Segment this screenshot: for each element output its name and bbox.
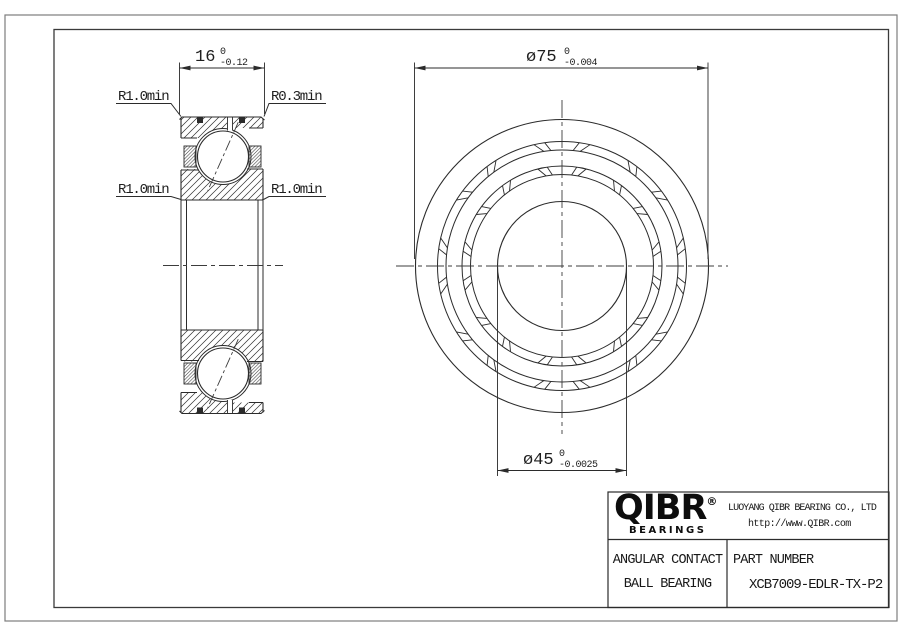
pocket-wall-line: [510, 180, 511, 191]
pocket-wall-line: [487, 356, 488, 366]
pocket-wall-line: [538, 169, 546, 176]
pocket-wall-line: [578, 356, 586, 363]
width-dim-value: 16: [195, 48, 215, 67]
outer-ring-section-bottom-right: [233, 403, 263, 414]
pocket-wall-line: [545, 143, 551, 151]
pocket-wall-line: [620, 186, 622, 195]
pocket-wall-line: [677, 249, 685, 255]
pocket-wall-line: [465, 242, 472, 250]
seal-groove-bottom-right: [239, 408, 245, 414]
pocket-wall-line: [633, 324, 642, 326]
pocket-wall-line: [677, 284, 684, 294]
product-type-line2: BALL BEARING: [608, 577, 727, 592]
dim-arrow: [616, 468, 627, 473]
pocket-wall-line: [614, 341, 615, 352]
ball-bottom: [198, 348, 249, 399]
dim-arrow: [697, 66, 708, 71]
pocket-wall-line: [534, 145, 544, 152]
cage-section-bottom-left: [184, 363, 196, 384]
pocket-wall-line: [573, 143, 579, 151]
pocket-wall-line: [441, 238, 448, 248]
registered-trademark-icon: ®: [706, 495, 717, 508]
pocket-wall-line: [653, 251, 661, 256]
pocket-wall-line: [572, 167, 577, 175]
dim-arrow: [415, 66, 426, 71]
cage-section-top-left: [184, 146, 196, 167]
pocket-wall-line: [441, 284, 448, 294]
engineering-drawing-sheet: 16 0 -0.12 R1.0min R0.3min R1.0min R1.0m…: [0, 0, 900, 636]
seal-slot-bottom: [228, 400, 233, 414]
pocket-wall-line: [652, 282, 659, 290]
pocket-wall-line: [652, 191, 662, 192]
pocket-wall-line: [580, 381, 590, 388]
dim-arrow: [180, 66, 191, 71]
pocket-wall-line: [573, 381, 579, 389]
pocket-wall-line: [653, 276, 661, 281]
pocket-wall-line: [487, 167, 488, 177]
seal-groove-top-left: [197, 118, 203, 124]
cage-section-top-right: [249, 146, 261, 167]
front-view: ø75 0 -0.004 ø45 0 -0.0025: [396, 47, 728, 476]
pocket-wall-line: [439, 277, 447, 283]
pocket-wall-line: [463, 191, 473, 192]
pocket-wall-line: [636, 167, 637, 177]
ball-top: [198, 131, 249, 182]
outer-ring-section-top-right: [233, 117, 263, 128]
bore-dim-tol-lower: -0.0025: [559, 460, 598, 471]
pocket-wall-line: [677, 238, 684, 248]
company-name: LUOYANG QIBR BEARING CO., LTD: [728, 503, 876, 514]
pocket-wall-line: [476, 318, 487, 319]
pocket-wall-line: [476, 214, 487, 215]
width-dim-tol-lower: -0.12: [220, 58, 248, 69]
part-number-value: XCB7009-EDLR-TX-P2: [749, 577, 882, 593]
od-dimension: ø75 0 -0.004: [415, 47, 709, 259]
pocket-wall-line: [534, 381, 544, 388]
pocket-wall-line: [545, 381, 551, 389]
dim-arrow: [498, 468, 509, 473]
pocket-wall-line: [463, 251, 471, 256]
pocket-wall-line: [503, 186, 505, 195]
width-dimension: 16 0 -0.12: [180, 47, 265, 114]
pocket-wall-line: [463, 340, 473, 341]
pocket-wall-line: [547, 167, 552, 175]
dim-arrow: [254, 66, 265, 71]
cage-section-bottom-right: [249, 363, 261, 384]
pocket-wall-line: [482, 324, 491, 326]
pocket-wall-line: [614, 180, 615, 191]
product-type-line1: ANGULAR CONTACT: [608, 553, 727, 568]
pocket-wall-line: [465, 282, 472, 290]
pocket-wall-line: [580, 145, 590, 152]
pocket-wall-line: [637, 214, 648, 215]
pocket-wall-line: [637, 318, 648, 319]
pocket-wall-line: [636, 356, 637, 366]
pocket-wall-line: [439, 249, 447, 255]
radius-label-mid-right: R1.0min: [271, 182, 322, 198]
pocket-wall-line: [482, 207, 491, 209]
width-dim-tol-upper: 0: [220, 47, 226, 58]
pocket-wall-line: [572, 357, 577, 365]
pocket-wall-line: [578, 169, 586, 176]
company-website: http://www.QIBR.com: [748, 519, 851, 530]
pocket-wall-line: [503, 337, 505, 346]
logo-text: QIBR: [614, 488, 706, 528]
pocket-wall-line: [547, 357, 552, 365]
seal-groove-bottom-left: [197, 408, 203, 414]
company-logo: QIBR®: [614, 491, 717, 526]
radius-label-top-left: R1.0min: [118, 89, 169, 105]
seal-slot-top: [228, 117, 233, 131]
pocket-wall-line: [677, 277, 685, 283]
sheet-border: [5, 15, 897, 621]
od-dim-tol-upper: 0: [564, 47, 570, 58]
pocket-wall-line: [652, 340, 662, 341]
pocket-wall-line: [463, 276, 471, 281]
od-dim-value: ø75: [526, 48, 557, 67]
radius-label-mid-left: R1.0min: [118, 182, 169, 198]
part-number-label: PART NUMBER: [733, 553, 813, 568]
bore-dim-value: ø45: [523, 451, 554, 470]
pocket-wall-line: [538, 356, 546, 363]
pocket-wall-line: [620, 337, 622, 346]
section-view: 16 0 -0.12 R1.0min R0.3min R1.0min R1.0m…: [116, 47, 326, 414]
pocket-wall-line: [633, 207, 642, 209]
seal-groove-top-right: [239, 118, 245, 124]
bore-edges: [181, 200, 263, 330]
drawing-canvas: 16 0 -0.12 R1.0min R0.3min R1.0min R1.0m…: [0, 0, 900, 636]
pocket-wall-line: [510, 341, 511, 352]
pocket-wall-line: [652, 242, 659, 250]
radius-label-top-right: R0.3min: [271, 89, 322, 105]
bore-dim-tol-upper: 0: [559, 449, 565, 460]
logo-subtext: BEARINGS: [629, 525, 706, 536]
od-dim-tol-lower: -0.004: [564, 58, 598, 69]
